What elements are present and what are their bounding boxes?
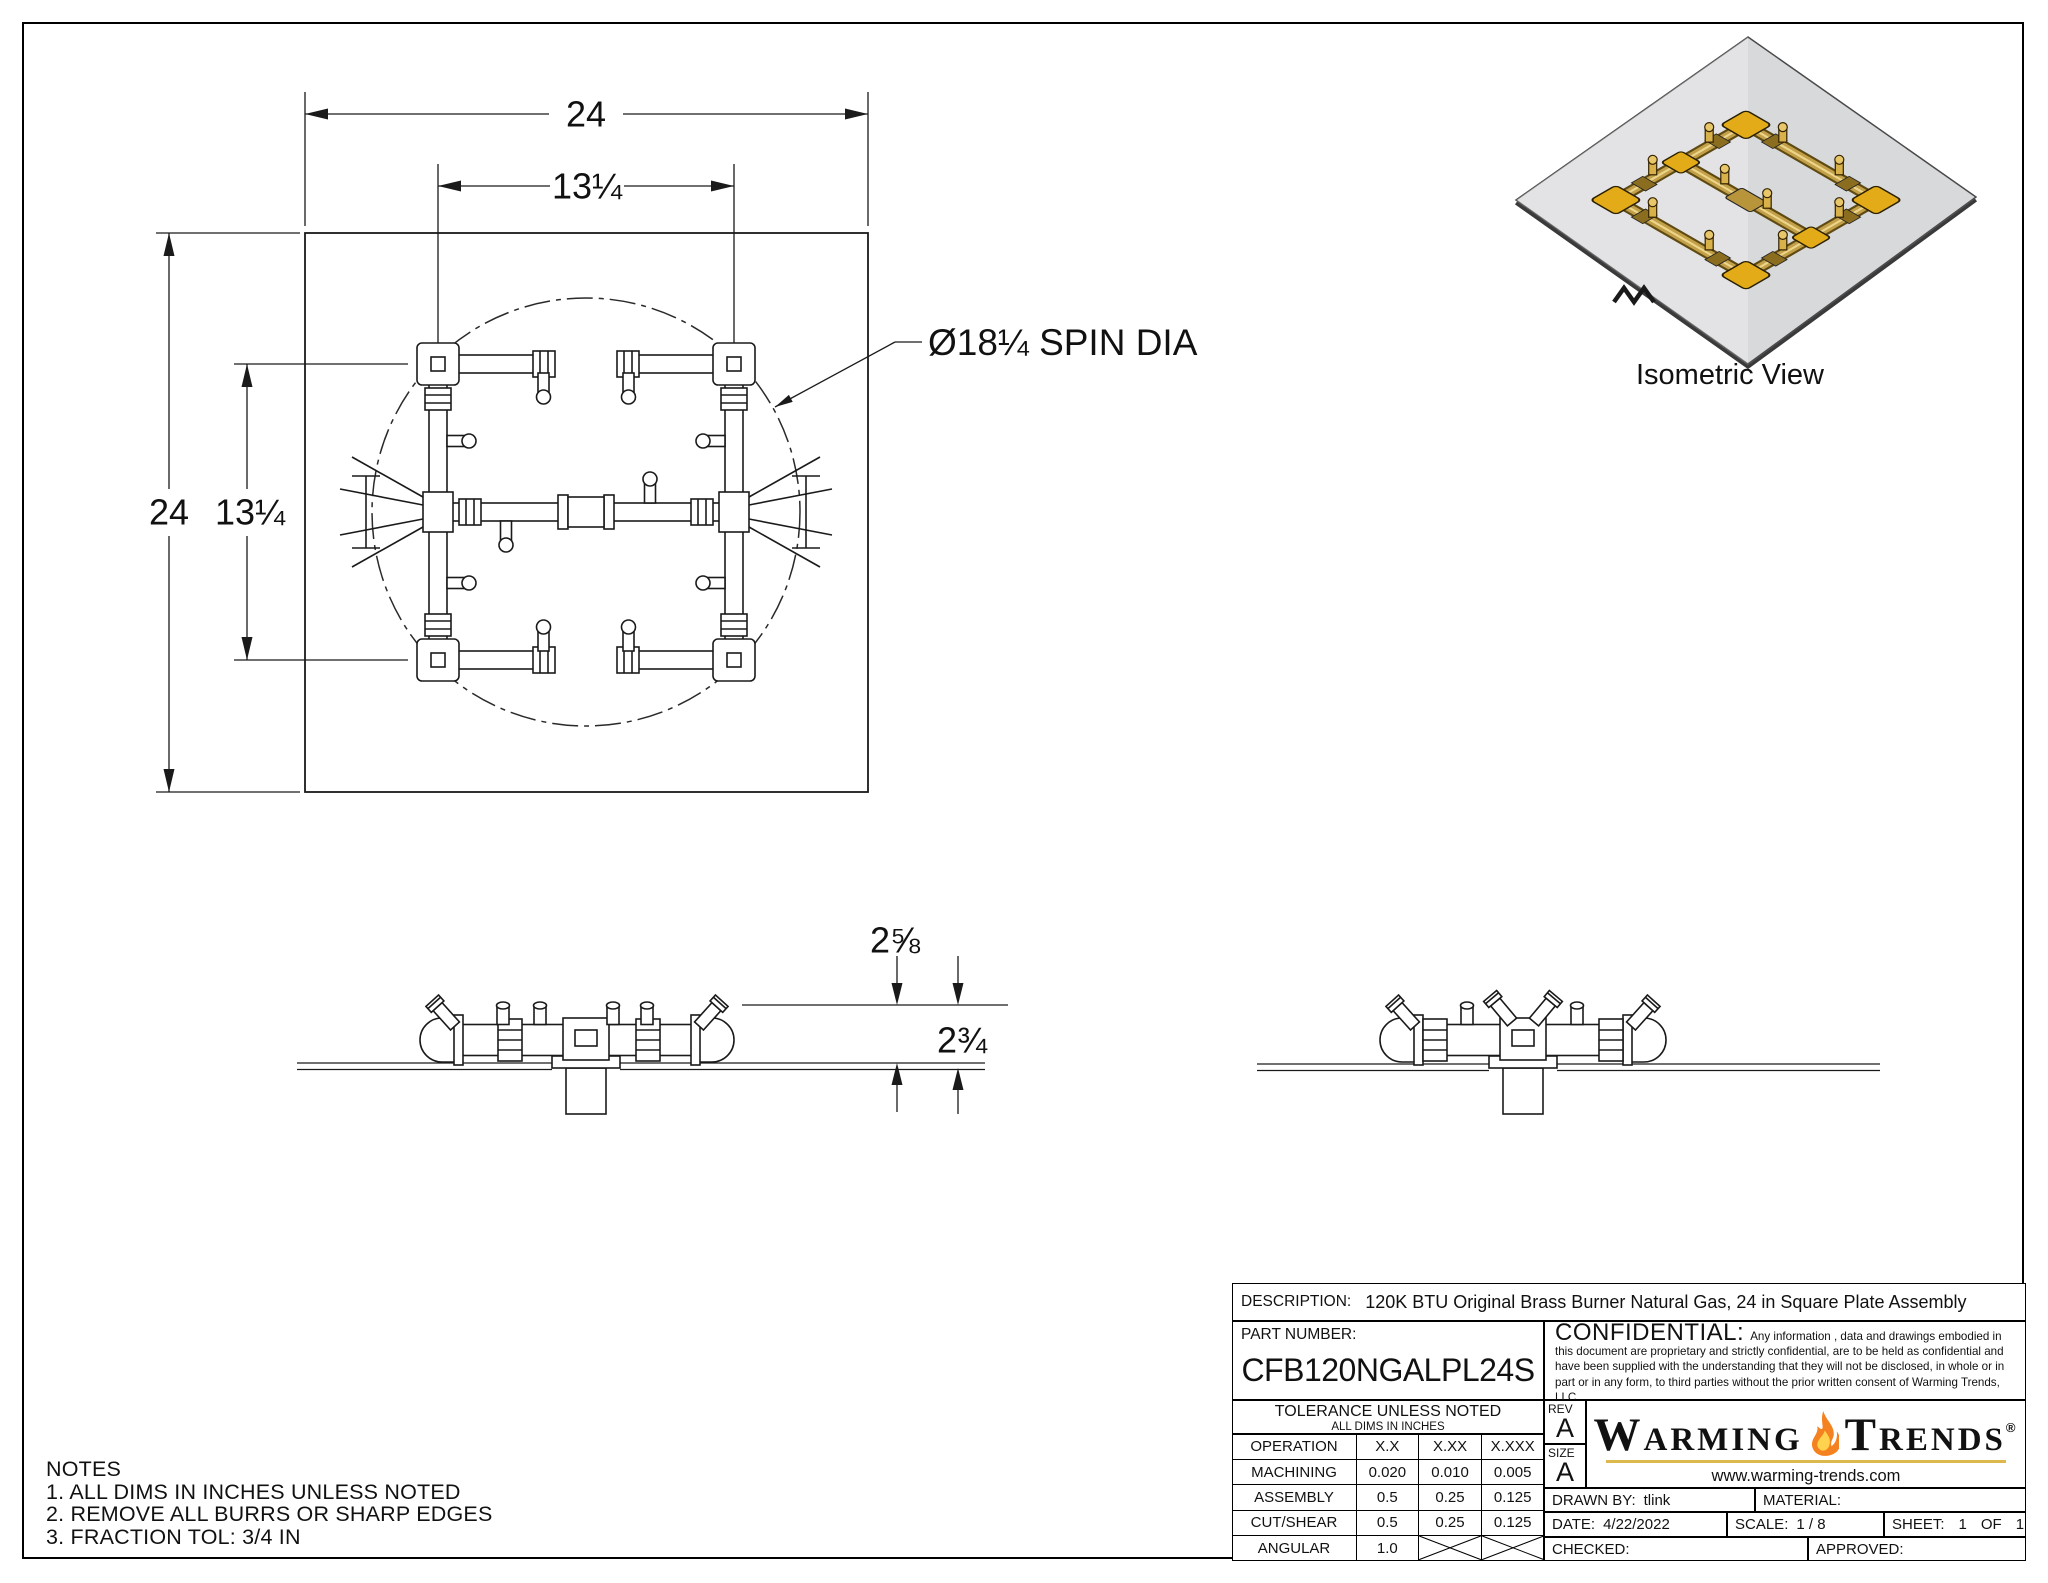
burner-side (1380, 990, 1666, 1114)
burner-front (420, 995, 734, 1114)
note-item: 1. ALL DIMS IN INCHES UNLESS NOTED (46, 1481, 493, 1504)
description-cell: DESCRIPTION: 120K BTU Original Brass Bur… (1232, 1283, 2026, 1321)
brand-word-right-initial: T (1845, 1409, 1879, 1461)
sheet-of-label: OF (1981, 1516, 2002, 1533)
tol-value-crossed (1481, 1535, 1545, 1561)
tol-row-label: MACHINING (1232, 1459, 1357, 1485)
dim-height-above-plate: 2⅝ (870, 920, 921, 961)
mounting-bracket-right (749, 457, 832, 567)
notes: NOTES 1. ALL DIMS IN INCHES UNLESS NOTED… (46, 1458, 493, 1548)
dim-plan-height-inner: 13¼ (215, 492, 286, 533)
checked-label: CHECKED: (1552, 1541, 1630, 1558)
tol-value: 0.25 (1418, 1510, 1482, 1536)
drawing-sheet: 24 13¼ 24 13¼ Ø18¼ SPIN DIA (0, 0, 2048, 1583)
dim-plan-width-inner: 13¼ (552, 166, 623, 207)
sheet-cell: SHEET: 1 OF 1 (1884, 1512, 2026, 1537)
warming-trends-logo: WARMING TRENDS® (1587, 1407, 2025, 1457)
tol-header: OPERATION (1232, 1434, 1357, 1460)
date-label: DATE: (1552, 1516, 1595, 1533)
tol-value: 0.020 (1356, 1459, 1420, 1485)
brand-website: www.warming-trends.com (1587, 1467, 2025, 1486)
mounting-bracket-left (340, 457, 423, 567)
brand-cell: WARMING TRENDS® www.warming-trends.com (1586, 1400, 2026, 1488)
plan-dimensions (156, 92, 922, 792)
tol-value: 0.125 (1481, 1484, 1545, 1510)
sheet-total: 1 (2016, 1516, 2024, 1533)
plan-dimension-arrows (164, 109, 869, 793)
brand-word-left: ARMING (1644, 1422, 1803, 1458)
scale-label: SCALE: (1735, 1516, 1788, 1533)
burner-plan (340, 343, 832, 681)
notes-title: NOTES (46, 1458, 493, 1481)
size-value: A (1545, 1460, 1585, 1484)
spin-dia-label: Ø18¼ SPIN DIA (928, 322, 1198, 363)
checked-cell: CHECKED: (1544, 1537, 1808, 1561)
tol-value: 1.0 (1356, 1535, 1420, 1561)
part-number-label: PART NUMBER: (1241, 1326, 1356, 1344)
note-item: 2. REMOVE ALL BURRS OR SHARP EDGES (46, 1503, 493, 1526)
note-item: 3. FRACTION TOL: 3/4 IN (46, 1526, 493, 1549)
part-number-value: CFB120NGALPL24S (1233, 1352, 1543, 1389)
size-cell: SIZE A (1544, 1444, 1586, 1488)
tol-row-label: CUT/SHEAR (1232, 1510, 1357, 1536)
tol-row-label: ASSEMBLY (1232, 1484, 1357, 1510)
description-value: 120K BTU Original Brass Burner Natural G… (1365, 1292, 1966, 1313)
drawn-by-value: tlink (1644, 1492, 1671, 1509)
dim-plan-height-outer: 24 (149, 492, 189, 533)
tol-header: X.XX (1418, 1434, 1482, 1460)
tol-value: 0.010 (1418, 1459, 1482, 1485)
flame-icon (1809, 1407, 1839, 1457)
date-value: 4/22/2022 (1603, 1516, 1670, 1533)
approved-cell: APPROVED: (1808, 1537, 2026, 1561)
sheet-label: SHEET: (1892, 1516, 1945, 1533)
isometric-view: Isometric View (1516, 37, 1976, 391)
tolerance-title: TOLERANCE UNLESS NOTED (1233, 1403, 1543, 1421)
warming-trends-mark (1614, 288, 1654, 302)
plan-view: 24 13¼ 24 13¼ Ø18¼ SPIN DIA (149, 92, 1198, 792)
iso-caption: Isometric View (1636, 359, 1825, 391)
tol-value: 0.25 (1418, 1484, 1482, 1510)
sheet-number: 1 (1959, 1516, 1967, 1533)
scale-value: 1 / 8 (1796, 1516, 1825, 1533)
tol-value: 0.125 (1481, 1510, 1545, 1536)
dim-plan-width-outer: 24 (566, 94, 606, 135)
description-label: DESCRIPTION: (1241, 1293, 1351, 1311)
front-view: 2⅝ 2¾ (297, 920, 1008, 1115)
tol-value: 0.5 (1356, 1484, 1420, 1510)
tol-value: 0.5 (1356, 1510, 1420, 1536)
approved-label: APPROVED: (1816, 1541, 1904, 1558)
part-number-cell: PART NUMBER: CFB120NGALPL24S (1232, 1321, 1544, 1400)
side-view (1257, 990, 1880, 1114)
scale-cell: SCALE: 1 / 8 (1727, 1512, 1884, 1537)
rev-value: A (1545, 1416, 1585, 1440)
tolerance-title-cell: TOLERANCE UNLESS NOTED ALL DIMS IN INCHE… (1232, 1400, 1544, 1434)
confidential-label: CONFIDENTIAL: (1555, 1319, 1744, 1346)
date-cell: DATE: 4/22/2022 (1544, 1512, 1727, 1537)
material-label: MATERIAL: (1763, 1492, 1841, 1509)
rev-cell: REV A (1544, 1400, 1586, 1444)
tol-value-crossed (1418, 1535, 1482, 1561)
brand-word-right: RENDS (1879, 1422, 2006, 1458)
confidential-cell: CONFIDENTIAL:Any information , data and … (1544, 1321, 2026, 1400)
tol-row-label: ANGULAR (1232, 1535, 1357, 1561)
tolerance-subtitle: ALL DIMS IN INCHES (1233, 1421, 1543, 1433)
brand-underline (1606, 1460, 2006, 1463)
material-cell: MATERIAL: (1755, 1488, 2026, 1512)
tol-header: X.X (1356, 1434, 1420, 1460)
registered-mark: ® (2006, 1420, 2019, 1435)
drawn-by-label: DRAWN BY: (1552, 1492, 1636, 1509)
dim-height-below-plate: 2¾ (937, 1020, 988, 1061)
tol-header: X.XXX (1481, 1434, 1545, 1460)
tolerance-table: OPERATION X.X X.XX X.XXX MACHINING 0.020… (1232, 1434, 1544, 1561)
drawn-by-cell: DRAWN BY: tlink (1544, 1488, 1755, 1512)
brand-word-left-initial: W (1594, 1409, 1644, 1461)
tol-value: 0.005 (1481, 1459, 1545, 1485)
title-block: DESCRIPTION: 120K BTU Original Brass Bur… (1232, 1283, 2026, 1561)
